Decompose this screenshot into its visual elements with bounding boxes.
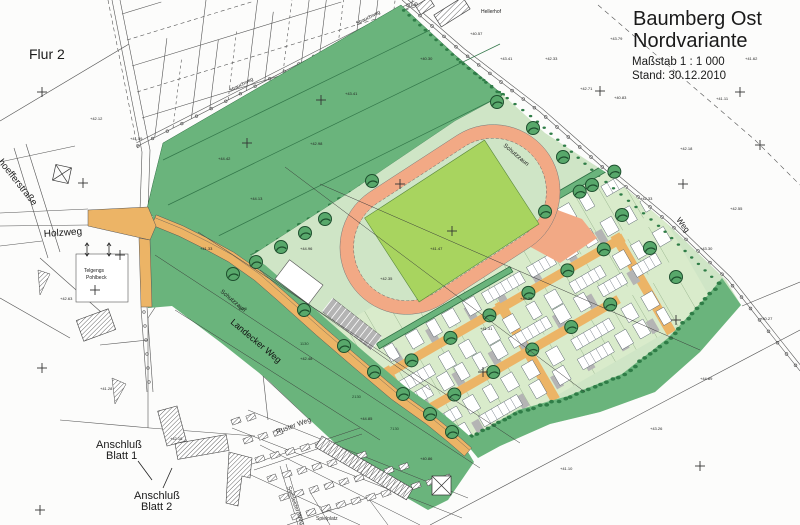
svg-text:+40.36: +40.36	[520, 296, 533, 301]
svg-text:Blatt 2: Blatt 2	[141, 501, 172, 513]
svg-text:+40.83: +40.83	[614, 95, 627, 100]
svg-text:+42.71: +42.71	[580, 86, 593, 91]
svg-text:+44.85: +44.85	[360, 416, 373, 421]
svg-text:Pohlbeck: Pohlbeck	[86, 275, 107, 281]
svg-text:Baumberg Ost: Baumberg Ost	[633, 8, 762, 30]
svg-text:+41.10: +41.10	[560, 466, 573, 471]
svg-text:+43.41: +43.41	[500, 56, 513, 61]
svg-text:Spielplatz: Spielplatz	[316, 516, 338, 522]
svg-text:+43.26: +43.26	[650, 426, 663, 431]
svg-text:+43.79: +43.79	[610, 36, 623, 41]
svg-text:1828: 1828	[238, 306, 248, 311]
svg-text:+43.30: +43.30	[700, 246, 713, 251]
svg-text:+44.96: +44.96	[300, 246, 313, 251]
svg-text:+42.33: +42.33	[545, 56, 558, 61]
svg-text:+44.13: +44.13	[250, 196, 263, 201]
svg-text:+40.57: +40.57	[470, 31, 483, 36]
svg-text:+41.62: +41.62	[745, 56, 758, 61]
svg-text:+42.33: +42.33	[640, 196, 653, 201]
svg-text:+43.41: +43.41	[345, 91, 358, 96]
svg-text:+41.28: +41.28	[100, 386, 113, 391]
svg-text:+41.11: +41.11	[716, 96, 729, 101]
svg-text:+41.31: +41.31	[480, 326, 493, 331]
svg-text:+42.18: +42.18	[680, 146, 693, 151]
svg-text:Blatt 1: Blatt 1	[106, 450, 137, 462]
svg-text:+40.27: +40.27	[760, 316, 773, 321]
svg-text:Nordvariante: Nordvariante	[633, 30, 748, 52]
svg-text:1130: 1130	[300, 341, 309, 346]
svg-text:+42.98: +42.98	[310, 141, 323, 146]
svg-text:+42.35: +42.35	[380, 276, 393, 281]
svg-text:+42.12: +42.12	[90, 116, 103, 121]
svg-text:2130: 2130	[352, 394, 362, 399]
svg-text:7130: 7130	[390, 426, 400, 431]
svg-text:+42.48: +42.48	[300, 356, 313, 361]
svg-text:Stand: 30.12.2010: Stand: 30.12.2010	[632, 70, 726, 82]
svg-text:Maßstab 1 : 1 000: Maßstab 1 : 1 000	[632, 56, 725, 68]
svg-text:+42.63: +42.63	[60, 296, 73, 301]
svg-text:+44.42: +44.42	[218, 156, 231, 161]
svg-text:Flur 2: Flur 2	[29, 46, 65, 62]
svg-text:+44.89: +44.89	[700, 376, 713, 381]
svg-text:Telgengs: Telgengs	[84, 268, 105, 274]
svg-text:+42.55: +42.55	[730, 206, 743, 211]
svg-text:Hellerhof: Hellerhof	[481, 9, 502, 15]
svg-text:+41.47: +41.47	[430, 246, 443, 251]
svg-text:+40.30: +40.30	[420, 56, 433, 61]
svg-text:+42.18: +42.18	[170, 436, 183, 441]
svg-text:+40.86: +40.86	[420, 456, 433, 461]
svg-text:+41.59: +41.59	[130, 136, 143, 141]
svg-text:+41.33: +41.33	[200, 246, 213, 251]
